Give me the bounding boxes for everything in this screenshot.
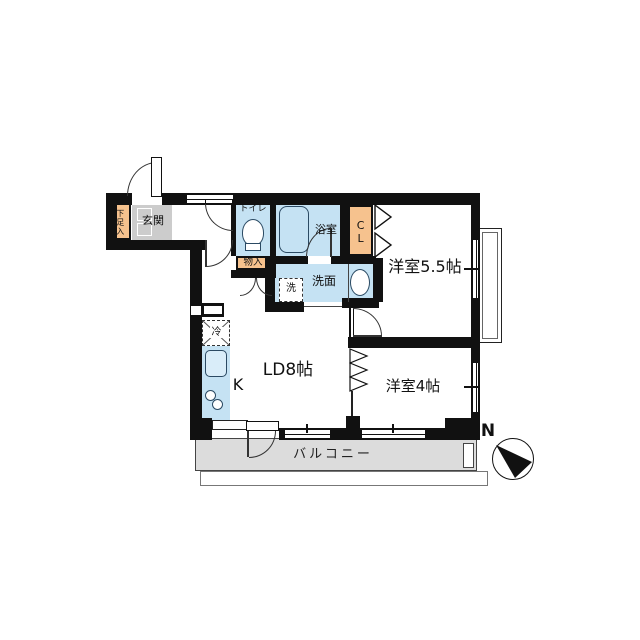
wall-ld-left — [190, 240, 202, 430]
label-shoe-cabinet: 下足入 — [115, 206, 124, 238]
washbasin — [350, 269, 370, 296]
compass-circle — [492, 438, 534, 480]
balcony-door-leaf — [246, 421, 279, 431]
partition-line-1 — [349, 306, 351, 338]
storage-door-right-arc — [256, 278, 272, 296]
room55-door-arc — [353, 308, 382, 336]
kitchen-sink — [205, 350, 227, 377]
toilet-base — [245, 243, 261, 251]
window-glass-line — [285, 434, 330, 435]
label-storage: 物入 — [238, 258, 268, 268]
window-tick — [306, 424, 308, 433]
label-entrance: 玄関 — [136, 215, 170, 227]
wall-room-divider — [348, 337, 480, 348]
label-bathroom: 浴室 — [310, 224, 342, 236]
balcony-ledge — [212, 420, 248, 430]
storage-door-left-arc — [240, 278, 256, 296]
entrance-door-leaf — [151, 157, 162, 197]
wall-corner-bl — [190, 418, 212, 440]
washroom-entry-line — [304, 306, 342, 307]
wall-washroom-right — [373, 258, 383, 302]
toilet-door-leaf — [205, 199, 233, 204]
bathtub — [279, 206, 309, 253]
wall-slot — [191, 306, 201, 315]
balcony-lower-band — [200, 471, 488, 486]
symbol-overlay — [0, 0, 640, 640]
label-compass-north: N — [478, 422, 498, 441]
label-kitchen: K — [230, 376, 246, 394]
label-room-4: 洋室4帖 — [380, 378, 446, 395]
room55-door-leaf — [353, 335, 382, 337]
accordion-lower-line — [351, 391, 353, 416]
floorplan-canvas: 下足入 玄関 トイレ 物入 浴室 CL 洋室5.5帖 洗 洗面 LD8帖 K 冷… — [0, 0, 640, 640]
wall-right-55-top — [471, 193, 480, 240]
closet-bifold-door-icon — [375, 205, 391, 257]
label-refrigerator: 冷 — [210, 327, 223, 338]
label-toilet: トイレ — [238, 205, 268, 215]
label-living-dining: LD8帖 — [250, 361, 326, 380]
label-closet: CL — [354, 212, 366, 252]
basin-divider-line — [348, 264, 349, 302]
wall-top-2 — [162, 193, 187, 205]
wall-right-4-top — [471, 348, 480, 363]
wall-right-55-bottom — [471, 298, 480, 338]
toilet-door-arc — [205, 203, 233, 231]
ld-door-leaf — [205, 240, 207, 267]
ld-door-arc — [206, 240, 233, 267]
label-room-55: 洋室5.5帖 — [383, 258, 467, 276]
window-glass-line — [362, 434, 425, 435]
accordion-door-icon — [350, 349, 367, 391]
wall-cl-bottom — [344, 256, 376, 264]
stove-burner-2 — [212, 399, 223, 410]
label-washer: 洗 — [284, 283, 298, 294]
wall-stub-slot — [204, 306, 222, 314]
toilet-bowl — [242, 219, 264, 246]
balcony-end-partition — [463, 443, 474, 468]
label-washroom: 洗面 — [308, 275, 340, 288]
window-tick — [392, 424, 394, 433]
wall-washroom-bottom-left — [265, 302, 304, 312]
label-balcony: バルコニー — [285, 448, 381, 462]
wall-accordion-stub — [346, 416, 360, 430]
window-tick — [464, 386, 480, 388]
bay-window-inner — [482, 232, 498, 339]
